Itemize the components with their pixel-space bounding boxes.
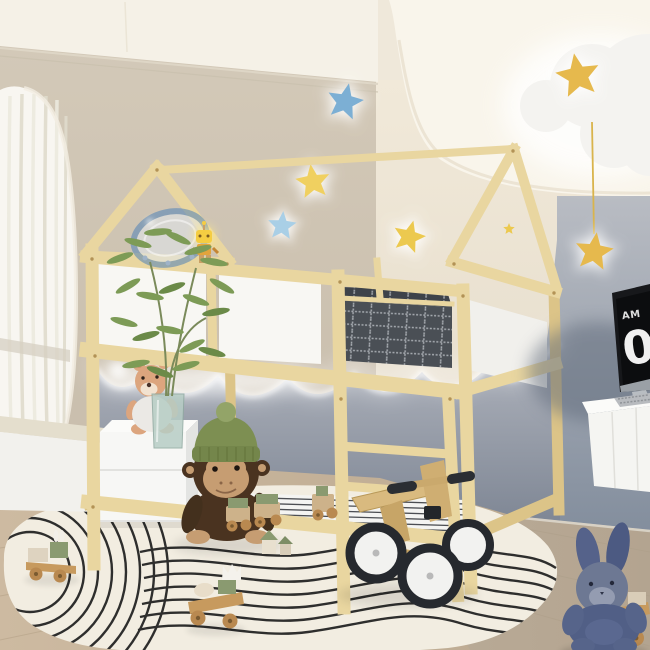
bunny-muzzle [589, 587, 615, 607]
arched-window [0, 86, 76, 434]
grip-right [452, 476, 470, 479]
room-photo: AM 0 [0, 0, 650, 650]
led-spot [109, 361, 127, 379]
left-post [92, 250, 94, 564]
panel-center [219, 269, 321, 364]
grip-left [392, 486, 412, 489]
bike-label [424, 506, 441, 519]
back-stile [377, 261, 380, 298]
desk-front [588, 406, 650, 492]
sparkle [147, 219, 153, 225]
scene-canvas: AM 0 [0, 0, 650, 650]
bunny-ear-figure [54, 530, 59, 542]
pompom [216, 402, 236, 422]
panel-left [98, 262, 206, 356]
